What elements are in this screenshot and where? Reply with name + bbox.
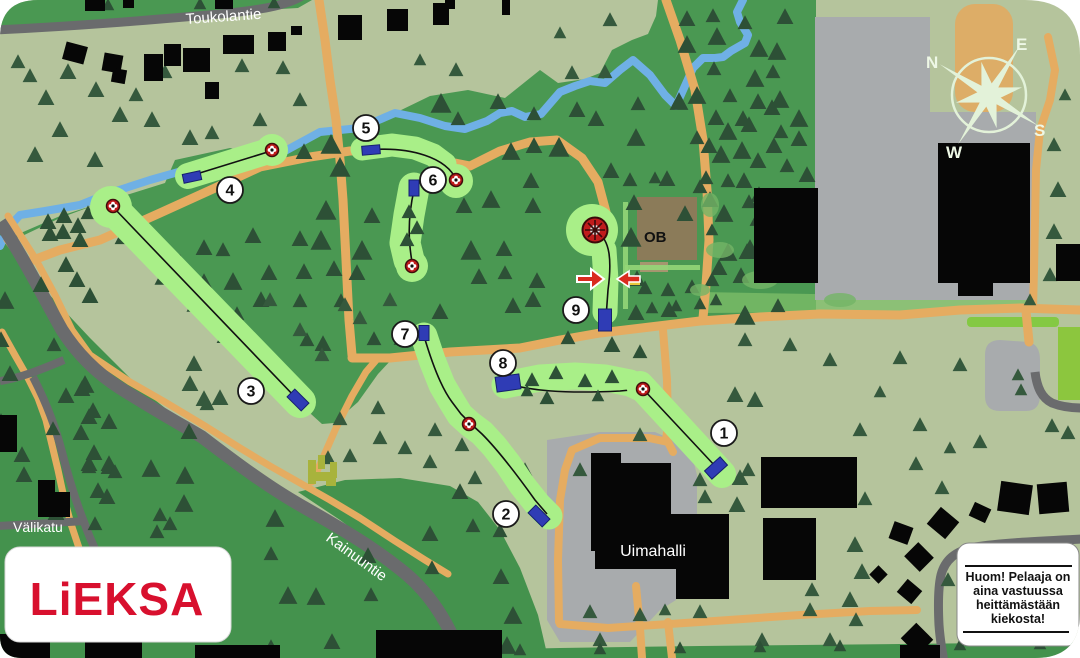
svg-text:W: W — [946, 143, 963, 162]
svg-text:4: 4 — [226, 183, 235, 200]
svg-text:N: N — [926, 53, 938, 72]
svg-text:2: 2 — [502, 507, 511, 524]
svg-text:S: S — [1034, 121, 1045, 140]
svg-text:heittämästään: heittämästään — [976, 598, 1060, 612]
svg-text:E: E — [1016, 35, 1027, 54]
svg-text:9: 9 — [572, 303, 581, 320]
svg-text:6: 6 — [429, 173, 438, 190]
svg-text:8: 8 — [499, 356, 508, 373]
svg-text:aina vastuussa: aina vastuussa — [973, 584, 1064, 598]
svg-text:Uimahalli: Uimahalli — [620, 543, 686, 560]
svg-text:LiEKSA: LiEKSA — [30, 573, 205, 625]
svg-text:kiekosta!: kiekosta! — [991, 612, 1045, 626]
svg-text:5: 5 — [362, 121, 371, 138]
svg-text:Välikatu: Välikatu — [13, 519, 63, 535]
svg-text:OB: OB — [644, 229, 667, 246]
svg-text:7: 7 — [401, 327, 410, 344]
svg-text:Huom! Pelaaja on: Huom! Pelaaja on — [966, 570, 1071, 584]
svg-text:1: 1 — [720, 426, 729, 443]
svg-text:3: 3 — [247, 384, 256, 401]
